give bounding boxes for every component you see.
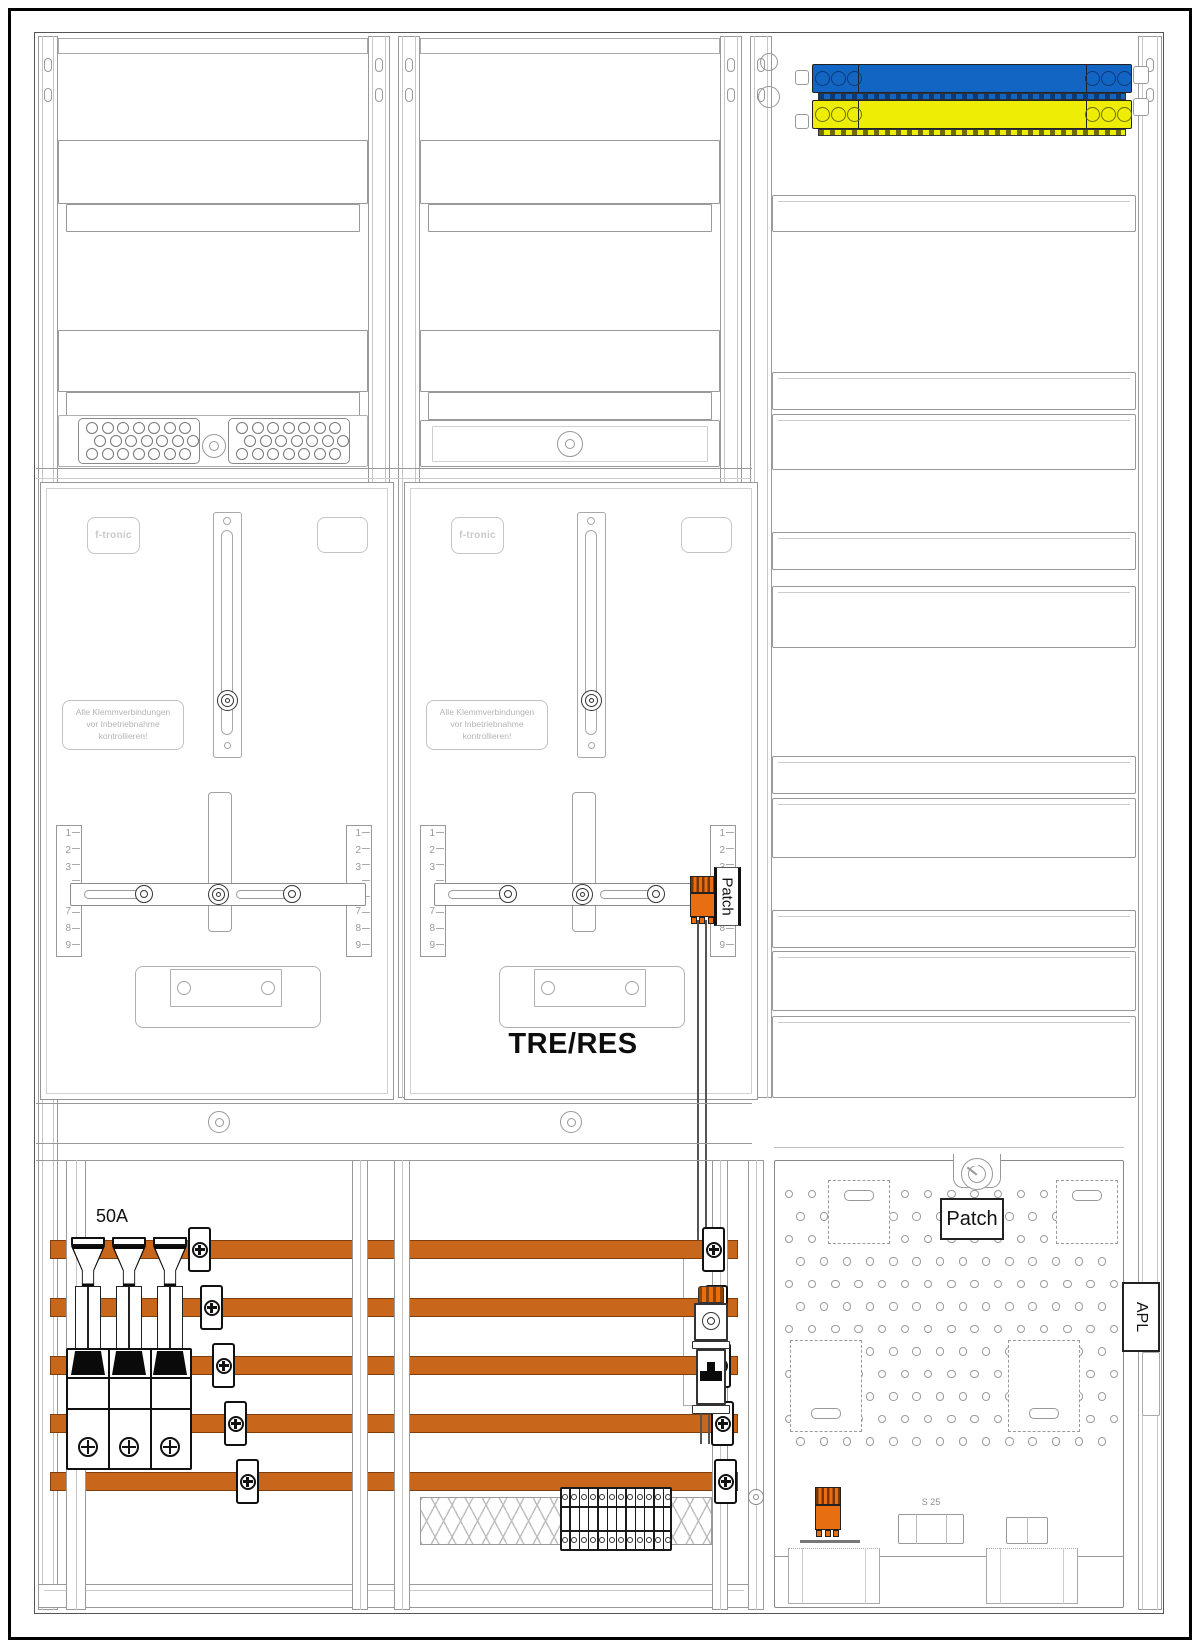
sheet-border — [8, 8, 1192, 1640]
meter-cabinet-technical-drawing: 123789123789123789123789 f-tronic f-tron… — [0, 0, 1200, 1648]
